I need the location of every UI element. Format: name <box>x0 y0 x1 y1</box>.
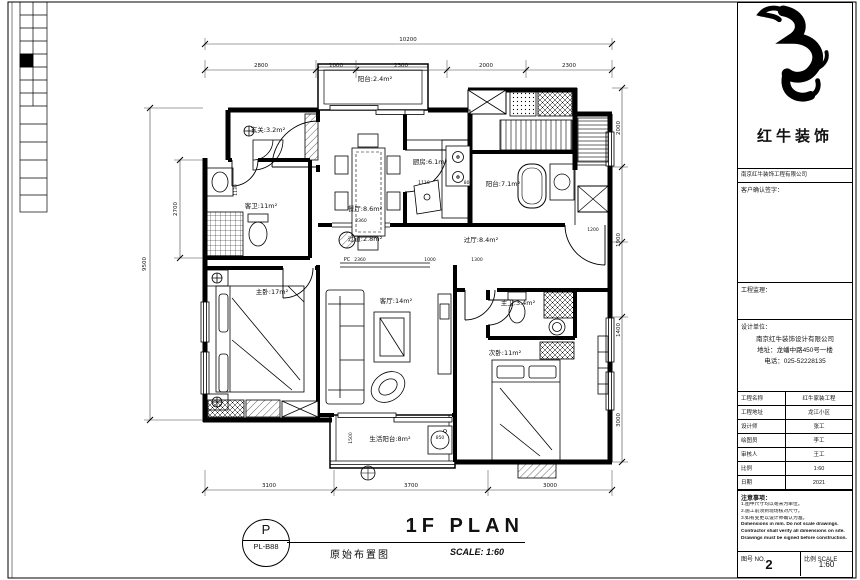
sofa <box>326 290 364 404</box>
logo-section: 红牛装饰 <box>738 3 852 169</box>
armchair <box>365 365 411 409</box>
scale-label: 比例 SCALE <box>804 554 837 563</box>
svg-text:3700: 3700 <box>404 483 418 489</box>
bathroom-left <box>207 168 268 256</box>
svg-text:2000: 2000 <box>616 121 622 135</box>
svg-text:主卫:3.4m²: 主卫:3.4m² <box>501 298 536 307</box>
svg-text:2000: 2000 <box>479 63 493 69</box>
notes-title: 注意事项： <box>741 493 849 502</box>
svg-text:1900: 1900 <box>616 233 622 247</box>
design-unit-box: 设计单位： 南京红牛装饰设计有限公司地址：龙蟠中路450号一楼电话：025-52… <box>738 320 852 392</box>
notes-lines: 1.图中尺寸均以毫米为单位。2.施工前须到现场核对尺寸。3.如有变更以设计师确认… <box>741 502 849 543</box>
svg-text:玄关:3.2m²: 玄关:3.2m² <box>251 125 286 134</box>
svg-text:客卫:11m²: 客卫:11m² <box>245 201 278 210</box>
svg-text:餐厅:8.6m²: 餐厅:8.6m² <box>348 204 383 213</box>
design-unit-label: 设计单位： <box>741 322 771 331</box>
coffee-table <box>374 312 410 362</box>
svg-text:厨房:6.1m²: 厨房:6.1m² <box>413 157 448 166</box>
brand-name: 红牛装饰 <box>738 125 852 146</box>
svg-text:1200: 1200 <box>587 227 599 233</box>
wardrobe-hatches <box>208 400 318 417</box>
svg-text:1110: 1110 <box>418 180 430 186</box>
sheet-frame <box>8 2 856 578</box>
svg-text:2360: 2360 <box>354 257 366 263</box>
svg-text:客厅:14m²: 客厅:14m² <box>380 296 413 305</box>
master-bed <box>216 286 304 392</box>
info-row: 工程名称红牛家装工程 <box>738 392 852 406</box>
drawing-scale: SCALE: 1:60 <box>450 547 504 557</box>
bull-logo-icon <box>745 3 845 121</box>
svg-text:2300: 2300 <box>562 63 576 69</box>
info-row: 工程地址龙江小区 <box>738 406 852 420</box>
stamp-letter: P <box>243 520 289 540</box>
svg-text:阳台:2.4m²: 阳台:2.4m² <box>358 74 393 83</box>
svg-text:2700: 2700 <box>173 202 179 216</box>
svg-text:1000: 1000 <box>329 63 343 69</box>
scale-cell: 比例 SCALE 1:60 <box>801 552 852 576</box>
svg-text:3000: 3000 <box>543 483 557 489</box>
drawing-title: 1F PLAN <box>298 515 524 538</box>
svg-text:1000: 1000 <box>424 257 436 263</box>
sheet-number-label: 图号 NO. <box>741 554 765 563</box>
stamp-code: PL-B88 <box>243 541 289 552</box>
svg-text:1500: 1500 <box>348 432 354 444</box>
info-row: 绘图员李工 <box>738 434 852 448</box>
stamp-circle: P PL-B88 <box>242 519 290 567</box>
sheet-number-cell: 图号 NO. 2 <box>738 552 801 576</box>
bathtub-washer <box>518 164 574 208</box>
svg-text:1300: 1300 <box>471 257 483 263</box>
info-row: 日期2021 <box>738 476 852 490</box>
bottom-balcony <box>330 413 455 480</box>
notes-box: 注意事项： 1.图中尺寸均以毫米为单位。2.施工前须到现场核对尺寸。3.如有变更… <box>738 490 852 552</box>
svg-text:850: 850 <box>436 435 445 441</box>
svg-text:2360: 2360 <box>355 218 367 224</box>
svg-text:主卧:17m²: 主卧:17m² <box>256 287 289 296</box>
brand-subtitle: 南京红牛装饰工程有限公司 <box>738 169 852 183</box>
svg-text:生活阳台:8m²: 生活阳台:8m² <box>369 434 411 443</box>
svg-text:9500: 9500 <box>142 257 148 271</box>
info-rows: 工程名称红牛家装工程工程地址龙江小区设计师张工绘图员李工审核人王工比例1:60日… <box>738 392 852 490</box>
floor-plan-svg: 阳台:2.4m²玄关:3.2m²餐厅:8.6m²厨房:6.1m²阳台:7.1m²… <box>0 0 860 580</box>
info-row: 设计师张工 <box>738 420 852 434</box>
client-sign-box: 客户确认签字： <box>738 183 852 283</box>
info-row: 比例1:60 <box>738 462 852 476</box>
svg-text:过厅:8.4m²: 过厅:8.4m² <box>464 235 499 244</box>
svg-text:2800: 2800 <box>254 63 268 69</box>
ac-platform <box>518 464 556 478</box>
drawing-sheet: { "footer": { "stamp_letter": "P", "stam… <box>0 0 860 580</box>
svg-text:1130: 1130 <box>233 184 239 196</box>
svg-text:1400: 1400 <box>616 323 622 337</box>
company-info: 南京红牛装饰设计有限公司地址：龙蟠中路450号一楼电话：025-52228135 <box>738 334 852 367</box>
info-row: 审核人王工 <box>738 448 852 462</box>
svg-text:PC: PC <box>344 257 351 263</box>
tv-cabinet <box>438 294 451 374</box>
supervisor-box: 工程监理： <box>738 283 852 320</box>
svg-text:过道:2.8m²: 过道:2.8m² <box>348 234 383 243</box>
svg-text:800: 800 <box>464 180 473 186</box>
svg-text:阳台:7.1m²: 阳台:7.1m² <box>486 179 521 188</box>
svg-text:3000: 3000 <box>616 413 622 427</box>
drawing-title-bar: P PL-B88 1F PLAN 原始布置图 SCALE: 1:60 <box>238 512 538 574</box>
title-block: 红牛装饰 南京红牛装饰工程有限公司 客户确认签字： 工程监理： 设计单位： 南京… <box>737 2 853 578</box>
svg-text:3100: 3100 <box>262 483 276 489</box>
windows <box>201 132 614 410</box>
svg-text:次卧:11m²: 次卧:11m² <box>489 348 522 357</box>
client-sign-label: 客户确认签字： <box>741 185 783 194</box>
number-row: 图号 NO. 2 比例 SCALE 1:60 <box>738 552 852 576</box>
svg-text:10200: 10200 <box>399 37 417 43</box>
drawing-subtitle: 原始布置图 <box>330 546 390 561</box>
svg-text:2300: 2300 <box>394 63 408 69</box>
top-balcony <box>318 64 428 115</box>
title-leader-line <box>287 542 525 543</box>
supervisor-label: 工程监理： <box>741 285 771 294</box>
revision-strip <box>20 2 47 212</box>
